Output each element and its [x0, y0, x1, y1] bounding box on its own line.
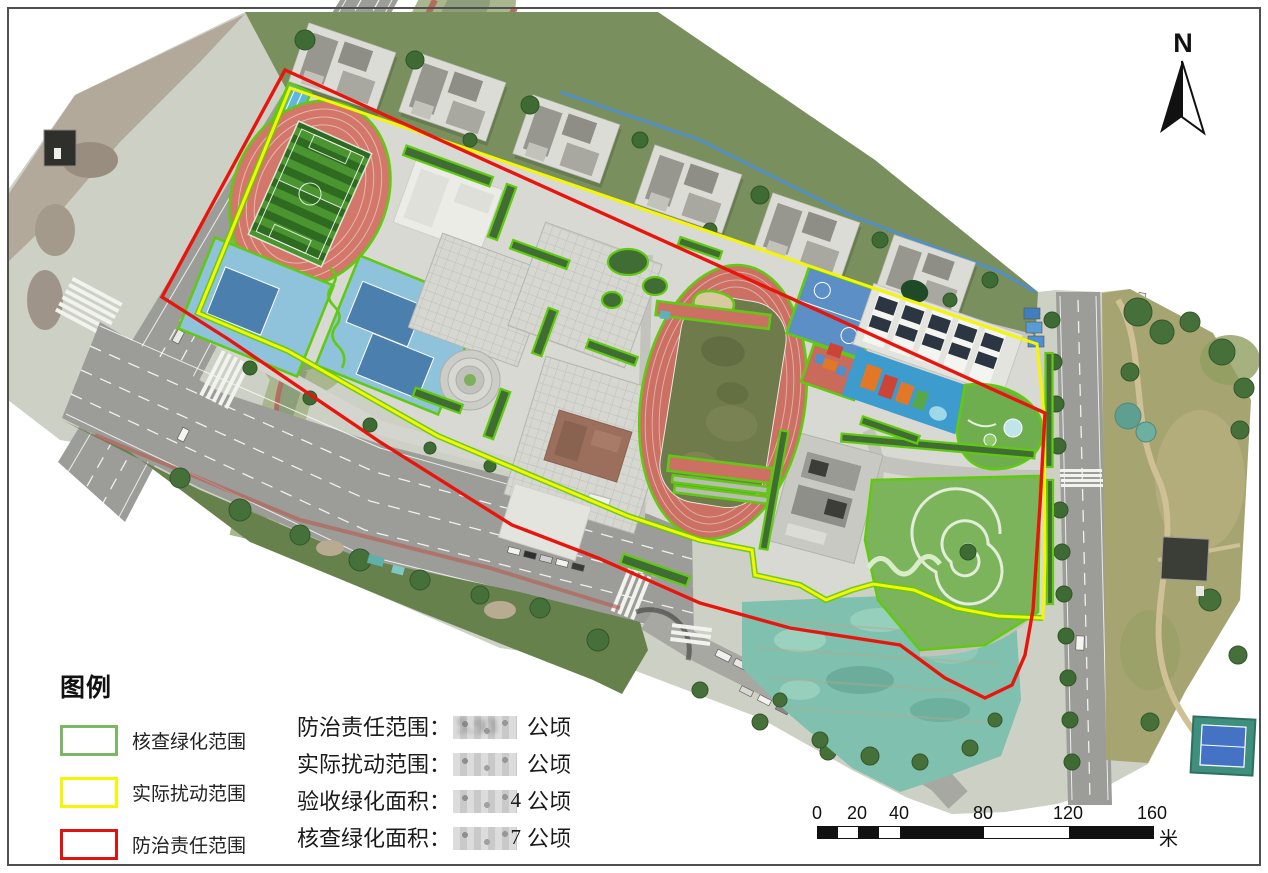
legend-item-label: 核查绿化范围	[132, 727, 246, 754]
park-tennis-court	[1191, 716, 1256, 775]
stat-row-verified-green: 核查绿化面积：7公顷	[297, 820, 571, 857]
scale-tick: 40	[889, 803, 909, 824]
area-statistics: 防治责任范围：5.93公顷 实际扰动范围：公顷 验收绿化面积：4公顷 核查绿化面…	[297, 709, 571, 857]
stat-unit: 公顷	[527, 752, 571, 777]
legend-item-disturbance: 实际扰动范围	[60, 777, 246, 808]
redacted-value	[453, 753, 517, 776]
scale-tick: 120	[1053, 803, 1083, 824]
scale-tick: 80	[973, 803, 993, 824]
north-arrow-icon	[1152, 57, 1214, 141]
stat-row-accepted-green: 验收绿化面积：4公顷	[297, 783, 571, 820]
redacted-value: 4	[453, 790, 517, 813]
scale-tick: 20	[847, 803, 867, 824]
stat-unit: 公顷	[527, 826, 571, 851]
legend-title: 图例	[60, 668, 246, 704]
north-label: N	[1152, 30, 1214, 57]
scale-unit: 米	[1159, 824, 1178, 851]
stat-unit: 公顷	[527, 715, 571, 740]
stat-label: 核查绿化面积：	[297, 820, 453, 857]
stat-label: 防治责任范围：	[297, 709, 453, 746]
legend: 图例 核查绿化范围 实际扰动范围 防治责任范围	[60, 668, 246, 860]
responsibility-swatch	[60, 829, 118, 860]
redacted-value: 5.93	[453, 716, 517, 739]
scale-tick: 0	[812, 803, 822, 824]
north-arrow: N	[1152, 30, 1214, 142]
scale-bar: 0 20 40 80 120 160 米	[815, 803, 1175, 849]
legend-item-responsibility: 防治责任范围	[60, 829, 246, 860]
redacted-value: 7	[453, 827, 517, 850]
stat-label: 实际扰动范围：	[297, 746, 453, 783]
scale-bar-segments	[817, 826, 1154, 839]
scale-tick: 160	[1137, 803, 1167, 824]
legend-item-label: 实际扰动范围	[132, 779, 246, 806]
stat-label: 验收绿化面积：	[297, 783, 453, 820]
stat-row-responsibility: 防治责任范围：5.93公顷	[297, 709, 571, 746]
verified-green-swatch	[60, 725, 118, 756]
legend-item-label: 防治责任范围	[132, 831, 246, 858]
legend-item-verified-green: 核查绿化范围	[60, 725, 246, 756]
east-park	[1102, 289, 1260, 776]
stat-row-disturbance: 实际扰动范围：公顷	[297, 746, 571, 783]
stat-unit: 公顷	[527, 789, 571, 814]
map-sheet: N 图例 核查绿化范围 实际扰动范围 防治责任范围 防治责任范围：5.93公顷 …	[0, 0, 1268, 873]
disturbance-swatch	[60, 777, 118, 808]
